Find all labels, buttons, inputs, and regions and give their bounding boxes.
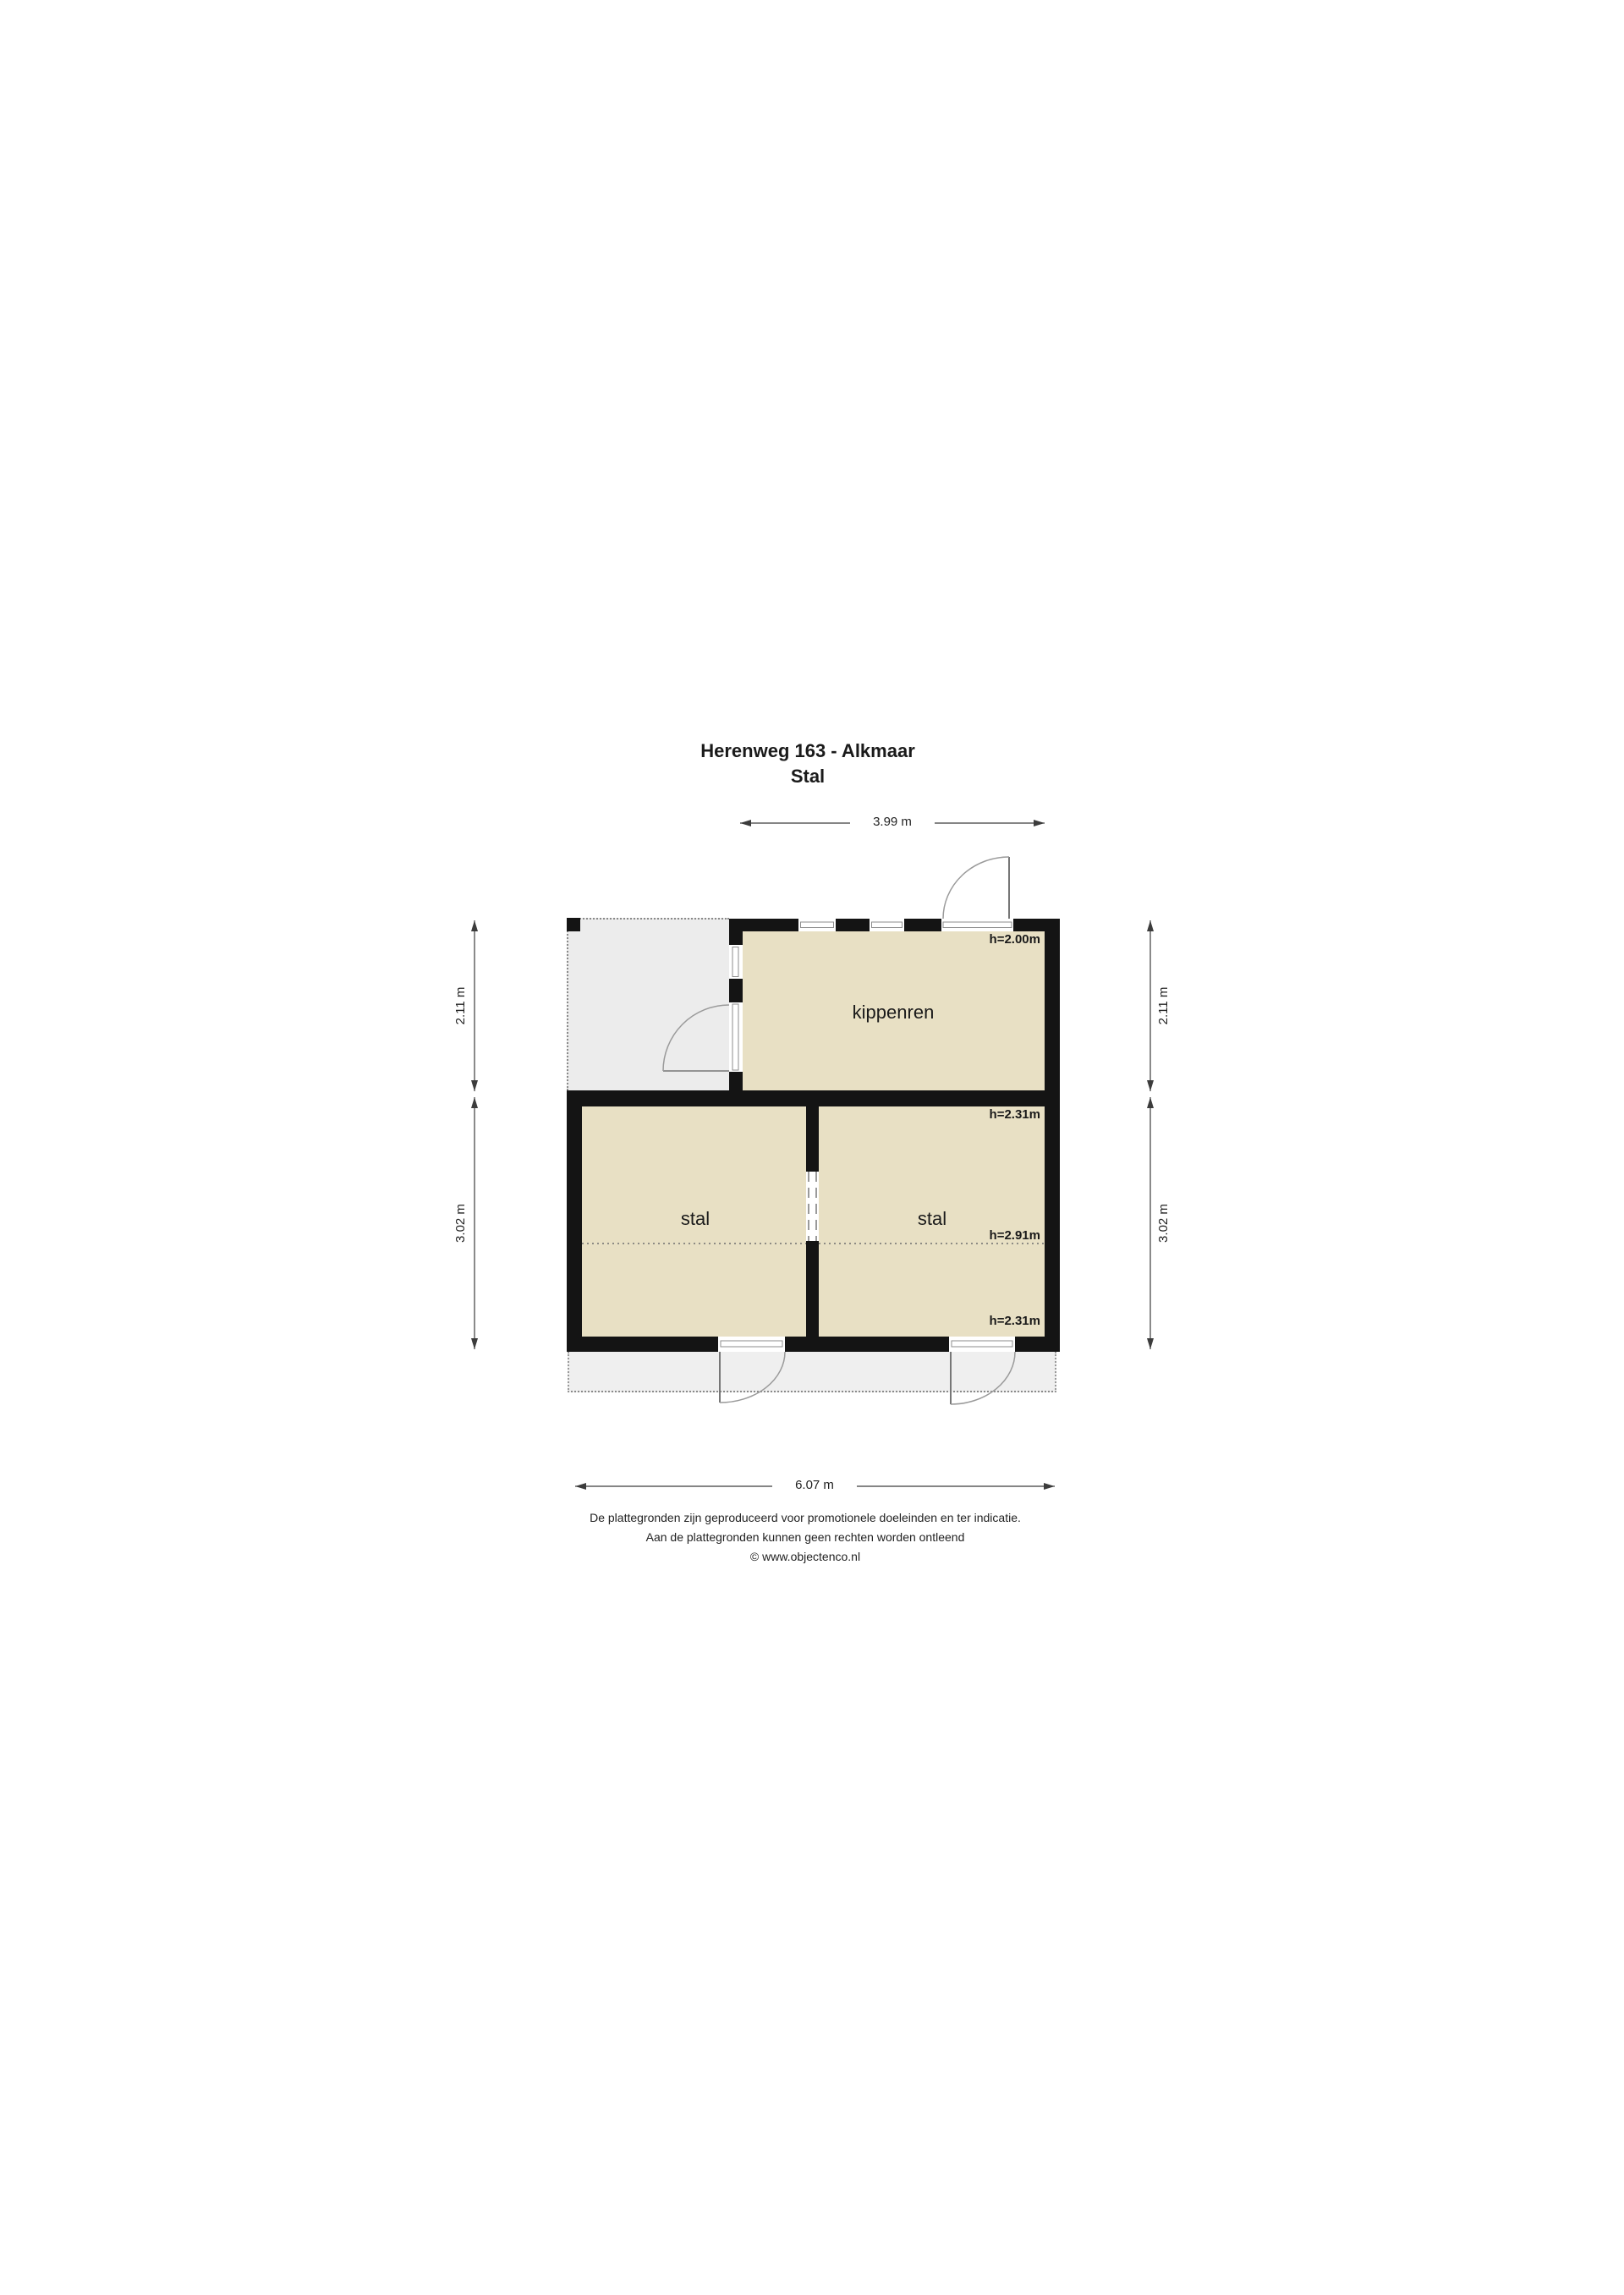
wall-top	[729, 919, 1060, 931]
dimension-label-right-upper: 2.11 m	[1155, 964, 1173, 1048]
dimension-line-left-upper	[471, 920, 478, 1091]
page: { "title": { "line1": "Herenweg 163 - Al…	[0, 0, 1624, 2295]
height-label-stal-mid: h=2.91m	[871, 1228, 1040, 1243]
wall-left	[567, 1090, 582, 1352]
dimension-line-left-lower	[471, 1097, 478, 1349]
plan-subtitle: Stal	[554, 765, 1062, 788]
copyright-line: © www.objectenco.nl	[382, 1547, 1228, 1567]
dimension-line-right-upper	[1147, 920, 1154, 1091]
height-label-kippenren: h=2.00m	[871, 932, 1040, 947]
height-label-stal-bottom: h=2.31m	[871, 1314, 1040, 1328]
room-label-stal-right: stal	[869, 1208, 996, 1230]
dimension-label-left-lower: 3.02 m	[452, 1181, 470, 1266]
wall-kippenren-west	[729, 919, 743, 1090]
dimension-label-bottom: 6.07 m	[772, 1477, 857, 1493]
apron-area	[568, 1352, 1056, 1392]
wall-middle-horizontal	[567, 1090, 1060, 1106]
wall-corner-post	[567, 918, 580, 931]
height-label-stal-top: h=2.31m	[871, 1107, 1040, 1122]
disclaimer-line-2: Aan de plattegronden kunnen geen rechten…	[382, 1528, 1228, 1547]
dimension-label-top: 3.99 m	[850, 814, 935, 830]
plan-title: Herenweg 163 - Alkmaar	[554, 739, 1062, 763]
dimension-label-right-lower: 3.02 m	[1155, 1181, 1173, 1266]
dimension-label-left-upper: 2.11 m	[452, 964, 470, 1048]
dimension-line-right-lower	[1147, 1097, 1154, 1349]
wall-right	[1045, 919, 1060, 1352]
open-area	[567, 918, 729, 1090]
wall-bottom	[567, 1337, 1060, 1352]
room-label-kippenren: kippenren	[809, 1002, 978, 1024]
room-label-stal-left: stal	[632, 1208, 759, 1230]
wall-stal-divider	[806, 1106, 819, 1337]
disclaimer-line-1: De plattegronden zijn geproduceerd voor …	[382, 1508, 1228, 1528]
